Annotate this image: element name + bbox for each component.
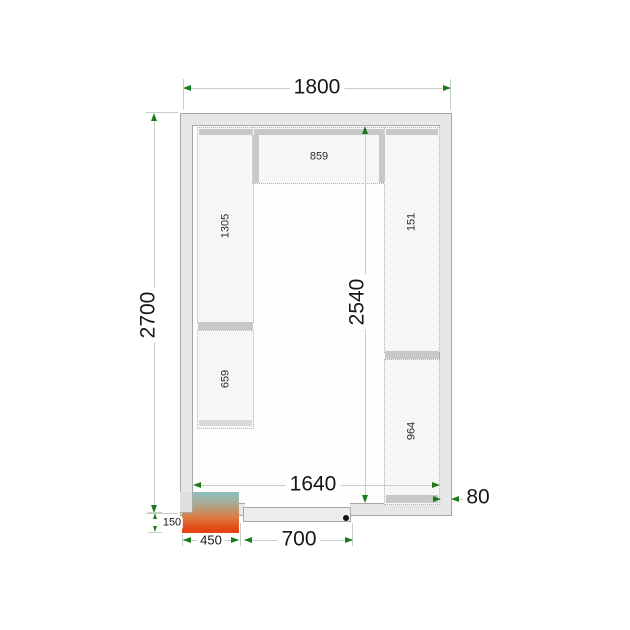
dim-1640-label: 1640 [286,474,341,495]
dim-1800-label: 1800 [290,77,345,98]
shelf-bar-top-left-post [253,135,259,183]
shelf-bar-top-right-post [379,135,385,183]
shelf-right-upper-label: 151 [407,213,418,231]
dim-80-label: 80 [462,487,493,508]
shelf-left-lower-label: 659 [221,370,232,388]
shelf-bar-right-top [386,129,438,135]
dim-150-arrow-top [153,513,157,519]
dim-450-arrow-right [231,537,239,543]
dim-2700-label: 2700 [138,288,159,343]
dim-1640-arrow-left [193,482,201,488]
dim-1800-ext-right [450,79,451,110]
dim-150-label: 150 [161,518,183,529]
dim-2540-arrow-bottom [362,495,368,503]
dim-2540-label: 2540 [347,275,368,330]
dim-450-label: 450 [197,534,225,547]
shelf-right-lower-label: 964 [407,422,418,440]
dim-150-arrow-bottom [153,526,157,532]
dim-700-arrow-left [244,537,252,543]
dim-2540-arrow-top [362,126,368,134]
dim-80-arrow-right [451,496,459,502]
door-leaf [243,507,351,522]
door-handle-dot [343,515,349,521]
dim-2700-ext-bottom [146,513,178,514]
shelf-bar-right-divider [385,351,439,359]
dim-700-arrow-right [345,537,353,543]
dim-80-arrow-left [433,496,441,502]
floor-plan-canvas: 859 1305 659 151 964 1800 2700 2540 1640… [0,0,630,630]
dim-450-ext-right [240,523,241,546]
dim-1800-arrow-right [443,85,451,91]
dim-1800-arrow-left [183,85,191,91]
dim-450-arrow-left [183,537,191,543]
wall-over-unit-patch [180,492,193,513]
shelf-right-upper [384,127,440,353]
dim-1800-ext-left [183,79,184,110]
shelf-bar-left-divider [198,322,253,330]
shelf-top-label: 859 [310,152,328,163]
dim-2700-arrow-top [151,113,157,121]
shelf-left-upper-label: 1305 [221,214,232,238]
shelf-bar-left-bottom [199,420,252,426]
shelf-bar-left-top [199,129,252,135]
dim-700-label: 700 [277,529,320,550]
dim-1640-arrow-right [432,482,440,488]
dim-150-tick-bottom [148,532,162,533]
